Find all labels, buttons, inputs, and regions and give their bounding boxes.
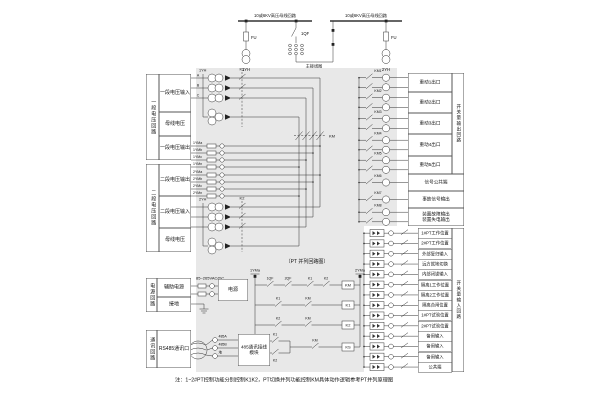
wire-label: KM xyxy=(305,297,310,301)
junction-dot xyxy=(298,195,300,197)
schematic-canvas: 10或6KV高压母线回路 FU 1YH 1QF 主接线图 xyxy=(0,0,600,400)
left-group-cell: 接地 xyxy=(157,297,191,312)
terminal-circle xyxy=(210,284,215,289)
coil-label: KM1 xyxy=(374,69,381,73)
junction-dot xyxy=(312,181,314,183)
ym-label: 2YMn xyxy=(193,191,202,195)
contact-symbol xyxy=(401,250,408,255)
pt-winding xyxy=(215,242,223,250)
fuse-symbol xyxy=(207,165,216,169)
relay-coil xyxy=(382,84,389,91)
relay-coil xyxy=(382,157,389,164)
junction-dot xyxy=(363,243,365,245)
winding-dots-icon xyxy=(289,44,304,55)
wire-label: KS xyxy=(345,345,351,350)
output-wide-box: 事故信号输出 xyxy=(408,191,464,208)
wire-label: K1 xyxy=(346,303,352,308)
terminal-square xyxy=(254,275,257,278)
terminal-circle xyxy=(213,354,218,359)
top-schematic: 10或6KV高压母线回路 FU 1YH 1QF 主接线图 xyxy=(238,12,402,72)
input-box: 2#PT试验位置 xyxy=(418,321,452,331)
relay-coil xyxy=(382,125,389,132)
terminal-circle xyxy=(220,165,224,169)
junction-dot xyxy=(363,315,365,317)
junction-dot xyxy=(363,346,365,348)
terminal-circle xyxy=(220,187,224,191)
contact-symbol xyxy=(401,353,408,358)
junction-dot xyxy=(363,284,365,286)
coil-label: KM3 xyxy=(374,110,381,114)
contact-symbol xyxy=(401,364,408,369)
junction-dot xyxy=(363,274,365,276)
contact-symbol xyxy=(401,271,408,276)
contact-symbol xyxy=(401,291,408,296)
pt-winding xyxy=(208,117,216,125)
rail-left-label: 1YMa xyxy=(250,269,261,273)
fuse-symbol xyxy=(207,151,216,155)
contact-symbol xyxy=(401,240,408,245)
k1-label: K1 xyxy=(240,67,246,72)
coil-label: KM2 xyxy=(374,89,381,93)
output-box: 重动5出口 xyxy=(408,156,452,174)
terminal-circle xyxy=(389,231,394,236)
input-box: 外部复归输入 xyxy=(418,249,452,259)
terminal-circle xyxy=(389,293,394,298)
left-group-cell: 辅助电源 xyxy=(157,278,191,297)
comm-module-box: 485通讯接线模块 xyxy=(238,334,270,366)
junction-dot xyxy=(305,159,307,161)
ym-label: 2YMc xyxy=(193,184,202,188)
terminal-circle xyxy=(389,272,394,277)
comm-terminal-label: 地 xyxy=(219,350,223,355)
left-group-cell: 一段电压输出 xyxy=(159,136,191,160)
pt-winding xyxy=(215,94,223,102)
relay-coil xyxy=(382,104,389,111)
junction-dot xyxy=(363,232,365,234)
output-wide-box: 装置故障输出装置失电输出 xyxy=(408,208,464,226)
pt-winding xyxy=(215,223,223,231)
km-label: KM xyxy=(329,134,335,139)
left-group-cell: 一段电压输入 xyxy=(159,74,191,112)
power-module-box: 电源 xyxy=(218,279,248,301)
terminal-circle xyxy=(213,338,218,343)
terminal-circle xyxy=(210,292,215,297)
output-box: 重动1出口 xyxy=(408,73,452,92)
pt-winding xyxy=(208,109,216,117)
relay-coil xyxy=(382,146,389,153)
junction-dot xyxy=(363,294,365,296)
pt-winding xyxy=(208,238,216,246)
terminal-circle xyxy=(220,194,224,198)
ym-label: 1YMb xyxy=(193,148,202,152)
coil-label: KM6 xyxy=(374,174,381,178)
pt-winding xyxy=(208,246,216,254)
wire-label: K1 xyxy=(308,277,312,281)
pt-winding xyxy=(215,113,223,121)
comm-terminal-label: 485A xyxy=(219,335,228,339)
terminal-circle xyxy=(220,151,224,155)
input-box: 1#PT工作位置 xyxy=(418,228,452,238)
output-box: 重动4出口 xyxy=(408,134,452,156)
wire-label: K1 xyxy=(276,297,280,301)
terminal-circle xyxy=(220,173,224,177)
comm-terminal-label: 485B xyxy=(219,343,228,347)
junction-dot xyxy=(305,188,307,190)
terminal-circle xyxy=(389,262,394,267)
relay-coil xyxy=(382,115,389,122)
terminal-circle xyxy=(220,144,224,148)
output-wide-box: 信号公共端 xyxy=(408,174,464,191)
wire-label: KM xyxy=(312,339,317,343)
box-label: 装置失电输出 xyxy=(422,217,450,223)
relay-coil xyxy=(382,196,389,203)
pt-right-label: 2YH xyxy=(382,67,390,72)
pt-winding xyxy=(215,74,223,82)
fuse-symbol xyxy=(207,187,216,191)
contact-symbol xyxy=(401,333,408,338)
wire-label: K2 xyxy=(346,323,352,328)
bus-left-label: 10或6KV高压母线回路 xyxy=(254,12,297,19)
input-box: 2#PT工作位置 xyxy=(418,238,452,248)
junction-dot xyxy=(312,152,314,154)
relay-coil xyxy=(382,209,389,216)
left-group-cell: 母线电压 xyxy=(159,228,191,252)
left-group-title: 一段电压回路 xyxy=(146,74,159,160)
fuse-symbol xyxy=(198,284,206,288)
input-box: 内部闭锁输入 xyxy=(418,269,452,279)
schematic-page: 10或6KV高压母线回路 FU 1YH 1QF 主接线图 xyxy=(0,0,600,400)
wire-label: 1QF xyxy=(267,277,274,281)
input-box: 备用输入 xyxy=(418,331,452,341)
left-group-title: 电源回路 xyxy=(146,278,157,312)
wire-label: KM xyxy=(345,283,351,288)
terminal-circle xyxy=(389,334,394,339)
fuse-label: FU xyxy=(391,35,397,40)
contact-symbol xyxy=(401,281,408,286)
fuse-symbol xyxy=(207,144,216,148)
ym-label: 2YMa xyxy=(193,170,202,174)
coil-label: KM7 xyxy=(374,191,381,195)
ym-label: 1YMc xyxy=(193,155,202,159)
input-box: 备用输入 xyxy=(418,352,452,362)
contact-symbol xyxy=(401,312,408,317)
contact-symbol xyxy=(401,261,408,266)
contact-symbol xyxy=(401,322,408,327)
output-box: 重动3出口 xyxy=(408,113,452,134)
pt-winding xyxy=(215,203,223,211)
junction-dot xyxy=(298,166,300,168)
junction-dot xyxy=(363,263,365,265)
device-body xyxy=(196,68,397,372)
input-box: 公共端 xyxy=(418,362,452,372)
input-box: 隔离2工作位置 xyxy=(418,290,452,300)
disconnect-switch-icon xyxy=(292,28,297,37)
terminal-square xyxy=(332,29,335,32)
input-column-title: 开关量输入回路 xyxy=(452,228,464,372)
junction-dot xyxy=(363,356,365,358)
fuse-symbol xyxy=(384,32,389,41)
left-group-title: 二段电压回路 xyxy=(146,164,159,252)
relay-coil xyxy=(382,137,389,144)
main-link-label: 主接线图 xyxy=(306,63,323,70)
junction-dot xyxy=(363,325,365,327)
terminal-circle xyxy=(389,365,394,370)
terminal-circle xyxy=(220,158,224,162)
relay-coil xyxy=(382,218,389,225)
pt-winding xyxy=(215,84,223,92)
relay-coil xyxy=(382,166,389,173)
fuse-symbol xyxy=(207,173,216,177)
terminal-square xyxy=(332,43,335,46)
relay-coil xyxy=(382,94,389,101)
fuse-label: FU xyxy=(251,35,257,40)
ladder-title: 〔PT 并列回路图〕 xyxy=(286,258,329,265)
contact-symbol xyxy=(401,230,408,235)
left-group-cell: 二段电压输入 xyxy=(159,196,191,228)
input-box: 隔离1工作位置 xyxy=(418,280,452,290)
input-box: 备用输入 xyxy=(418,341,452,351)
input-box: 1#PT试验位置 xyxy=(418,310,452,320)
junction-dot xyxy=(363,253,365,255)
bus-right-label: 10或6KV高压母线回路 xyxy=(345,12,388,19)
qf-label: 1QF xyxy=(301,31,310,36)
coil-label: KM8 xyxy=(374,204,381,208)
contact-symbol xyxy=(401,343,408,348)
junction-dot xyxy=(363,304,365,306)
relay-coil xyxy=(382,179,389,186)
coil-label: KM5 xyxy=(374,152,381,156)
terminal-circle xyxy=(389,251,394,256)
junction-dot xyxy=(319,145,321,147)
pt2-secondary-label: 2YH xyxy=(199,198,207,202)
terminal-circle xyxy=(389,241,394,246)
left-group-cell: 二段电压输出 xyxy=(159,164,191,196)
pt-winding xyxy=(382,56,390,64)
left-group-cell: RS485通讯口 xyxy=(157,330,191,368)
terminal-circle xyxy=(213,346,218,351)
terminal-circle xyxy=(389,354,394,359)
junction-dot xyxy=(363,335,365,337)
ym-label: 1YMn xyxy=(193,162,202,166)
fuse-symbol xyxy=(207,180,216,184)
input-box: 隔离合闸位置 xyxy=(418,300,452,310)
wire-label: KM xyxy=(305,317,310,321)
note-text: 注：1~2#PT控制功能分别控制K1K2，PT切换并列功能控制KM具体动作逻辑参… xyxy=(175,376,393,384)
terminal-square xyxy=(359,275,362,278)
ym-label: 2YMb xyxy=(193,177,202,181)
junction-dot xyxy=(363,366,365,368)
wire-label: 2QF xyxy=(285,277,292,281)
wire-label: K2 xyxy=(324,277,328,281)
fuse-symbol xyxy=(244,32,249,41)
input-box: 远方就地切换 xyxy=(418,259,452,269)
terminal-circle xyxy=(389,344,394,349)
terminal-circle xyxy=(389,313,394,318)
contact-symbol xyxy=(401,302,408,307)
pt-winding xyxy=(242,56,250,64)
fuse-symbol xyxy=(207,194,216,198)
left-group-cell: 母线电压 xyxy=(159,112,191,136)
fuse-symbol xyxy=(198,292,206,296)
wire-label: K2 xyxy=(276,317,280,321)
terminal-circle xyxy=(220,180,224,184)
coil-label: KM4 xyxy=(374,132,381,136)
terminal-circle xyxy=(389,323,394,328)
fuse-symbol xyxy=(207,158,216,162)
wire-label: K1 xyxy=(273,333,277,337)
output-column-title: 开关量输出回路 xyxy=(452,73,464,174)
left-group-title: 通讯回路 xyxy=(146,330,157,368)
output-box: 重动2出口 xyxy=(408,92,452,113)
relay-coil xyxy=(382,74,389,81)
wire-label: K2 xyxy=(273,359,277,363)
terminal-circle xyxy=(389,282,394,287)
junction-dot xyxy=(319,174,321,176)
ym-label: 1YMa xyxy=(193,141,202,145)
pt-winding xyxy=(215,213,223,221)
pt1-secondary-label: 1YH xyxy=(199,69,207,73)
terminal-circle xyxy=(389,303,394,308)
